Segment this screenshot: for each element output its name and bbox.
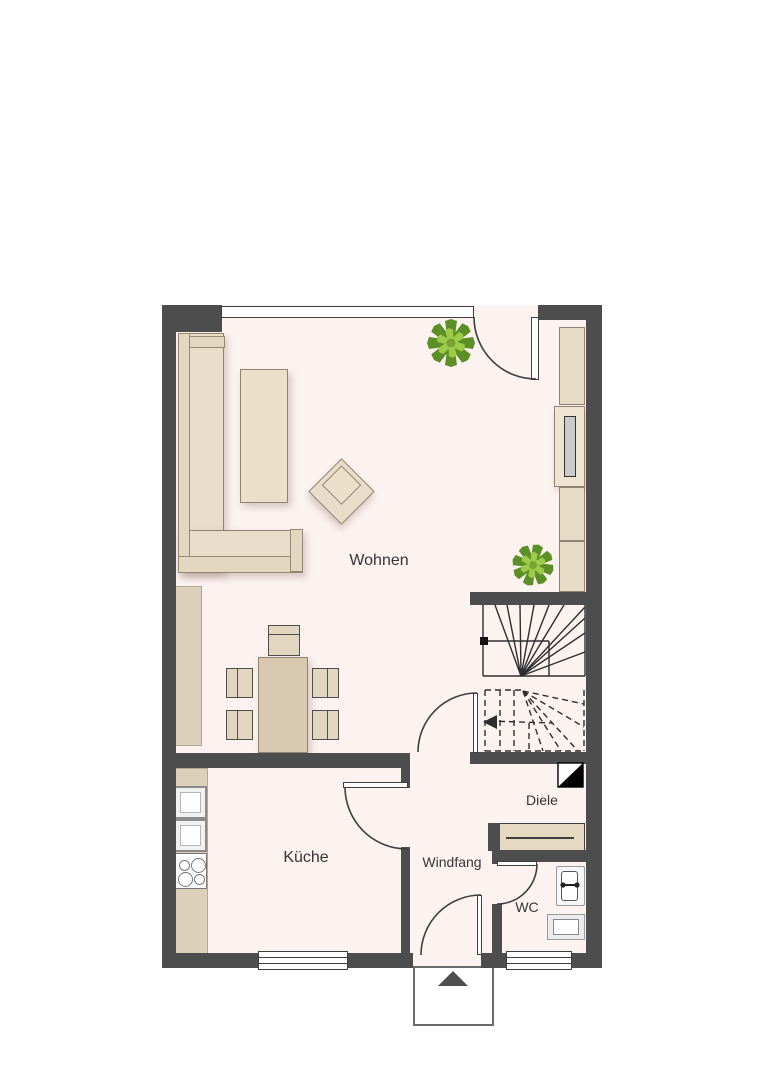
sideboard — [559, 487, 585, 541]
wall-segment — [470, 752, 587, 764]
window — [258, 951, 348, 970]
wall-segment — [488, 823, 500, 851]
sofa-backrest — [178, 333, 190, 573]
wall-segment — [470, 592, 587, 605]
sofa-backrest — [178, 556, 292, 573]
wall-segment — [162, 305, 176, 968]
oven — [174, 786, 207, 819]
sideboard — [559, 541, 585, 592]
chair — [312, 710, 339, 740]
chair — [312, 668, 339, 698]
wall-segment — [586, 305, 602, 968]
window — [221, 306, 474, 318]
sink-unit — [174, 819, 207, 852]
door-leaf — [531, 317, 539, 380]
wall-segment — [162, 305, 222, 332]
dining-table — [258, 657, 308, 753]
room-label-kueche: Küche — [283, 849, 328, 867]
window — [506, 951, 572, 970]
entrance-arrow-icon — [438, 971, 468, 986]
sideboard — [175, 586, 202, 746]
wall-segment — [162, 753, 410, 768]
door-leaf — [497, 861, 537, 866]
armchair-seat — [322, 465, 362, 505]
room-label-wohnen: Wohnen — [349, 552, 408, 570]
floor-area — [162, 305, 602, 968]
door-leaf — [343, 782, 408, 788]
sofa-armrest — [290, 529, 303, 572]
floor-plan: Wohnen Küche Windfang Diele WC — [0, 0, 763, 1080]
chair — [226, 710, 253, 740]
wall-segment — [492, 904, 502, 955]
wall-segment — [401, 847, 410, 955]
toilet — [547, 914, 585, 940]
sideboard — [559, 327, 585, 405]
room-label-wc: WC — [515, 899, 538, 915]
chair — [268, 625, 300, 656]
tv-screen — [564, 416, 576, 477]
room-label-diele: Diele — [526, 792, 558, 808]
chair — [226, 668, 253, 698]
door-leaf — [477, 895, 482, 955]
cooktop — [174, 853, 207, 889]
hall-sideboard — [495, 823, 585, 851]
room-label-windfang: Windfang — [422, 854, 481, 870]
door-leaf — [473, 693, 478, 753]
coffee-table — [240, 369, 288, 503]
washbasin — [556, 866, 585, 906]
